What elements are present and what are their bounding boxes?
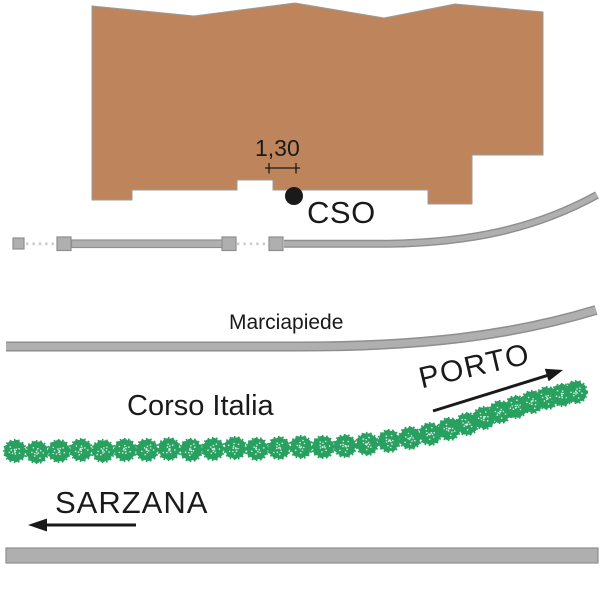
tree [399,427,421,449]
fence-post [269,237,283,251]
cso-point-dot [285,187,303,205]
tree [565,381,587,403]
tree [419,423,441,445]
tree [290,436,312,458]
boundary-fence [13,195,597,251]
tree [378,430,400,452]
cso-label: CSO [307,197,376,230]
arrow-left-icon [28,519,47,532]
road-edge-bar [6,548,598,563]
tree [334,435,356,457]
tree [312,436,334,458]
arrow-up-right-icon [545,369,563,381]
tree [4,440,26,462]
tree [70,439,92,461]
tree [158,438,180,460]
fence-post [57,237,71,251]
tree [356,433,378,455]
tree [202,438,224,460]
tree [268,437,290,459]
street-sketch-map: 1,30 CSO Marciapiede Corso Italia PORTO … [0,0,600,600]
tree [246,438,268,460]
tree-row [4,381,587,463]
tree [92,440,114,462]
sarzana-direction-label: SARZANA [55,487,208,520]
tree [114,439,136,461]
fence-post [222,237,236,251]
tree [48,440,70,462]
sidewalk-label: Marciapiede [229,312,343,334]
building-footprint [92,3,543,204]
sarzana-arrow [28,519,136,532]
tree [180,439,202,461]
fence-post [13,238,24,249]
dimension-label: 1,30 [255,136,300,160]
street-name-label: Corso Italia [127,391,274,421]
tree [26,441,48,463]
fence-bar [72,240,223,248]
tree [136,439,158,461]
tree [224,437,246,459]
